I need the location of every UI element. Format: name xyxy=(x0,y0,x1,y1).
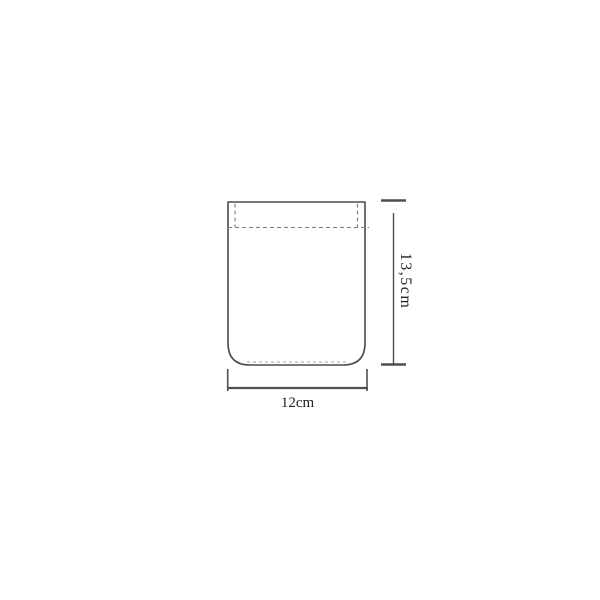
diagram-canvas: 13,5cm 12cm xyxy=(0,0,600,600)
pouch-outline xyxy=(228,202,365,365)
width-dimension-label: 12cm xyxy=(281,395,315,411)
height-dimension: 13,5cm xyxy=(381,201,414,365)
technical-drawing: 13,5cm 12cm xyxy=(0,0,600,600)
width-dimension: 12cm xyxy=(227,369,368,411)
height-dimension-label: 13,5cm xyxy=(397,253,414,310)
